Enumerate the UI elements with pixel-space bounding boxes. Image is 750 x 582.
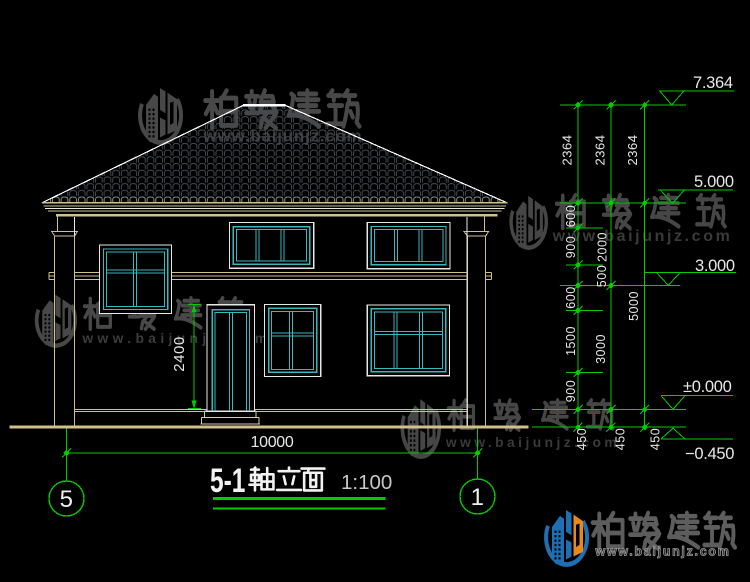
svg-text:3000: 3000 — [594, 334, 608, 364]
svg-text:−0.450: −0.450 — [685, 445, 734, 463]
svg-text:600: 600 — [564, 205, 578, 227]
svg-text:2400: 2400 — [171, 336, 188, 371]
svg-text:7.364: 7.364 — [693, 74, 733, 92]
svg-text:2364: 2364 — [625, 135, 640, 166]
svg-text:450: 450 — [575, 428, 589, 450]
svg-text:450: 450 — [614, 428, 628, 450]
svg-text:www.baijunjz.com: www.baijunjz.com — [552, 228, 733, 245]
svg-text:www.baijunjz.com: www.baijunjz.com — [445, 435, 620, 450]
svg-text:900: 900 — [564, 236, 578, 258]
svg-text:1: 1 — [471, 484, 485, 511]
svg-text:1:100: 1:100 — [341, 471, 392, 494]
svg-text:1500: 1500 — [564, 326, 578, 356]
svg-text:500: 500 — [595, 265, 609, 287]
svg-text:600: 600 — [564, 286, 578, 308]
svg-text:2364: 2364 — [560, 135, 575, 166]
svg-text:±0.000: ±0.000 — [683, 378, 732, 396]
svg-text:www.baijunjz.com: www.baijunjz.com — [594, 545, 730, 559]
svg-text:10000: 10000 — [251, 434, 294, 451]
svg-text:450: 450 — [649, 428, 663, 450]
svg-text:900: 900 — [564, 380, 578, 402]
svg-text:5.000: 5.000 — [694, 173, 734, 191]
svg-text:2000: 2000 — [596, 232, 610, 262]
svg-text:5000: 5000 — [627, 291, 641, 321]
svg-text:5: 5 — [60, 486, 74, 513]
svg-text:5-1: 5-1 — [210, 462, 245, 500]
svg-text:2364: 2364 — [593, 135, 608, 166]
